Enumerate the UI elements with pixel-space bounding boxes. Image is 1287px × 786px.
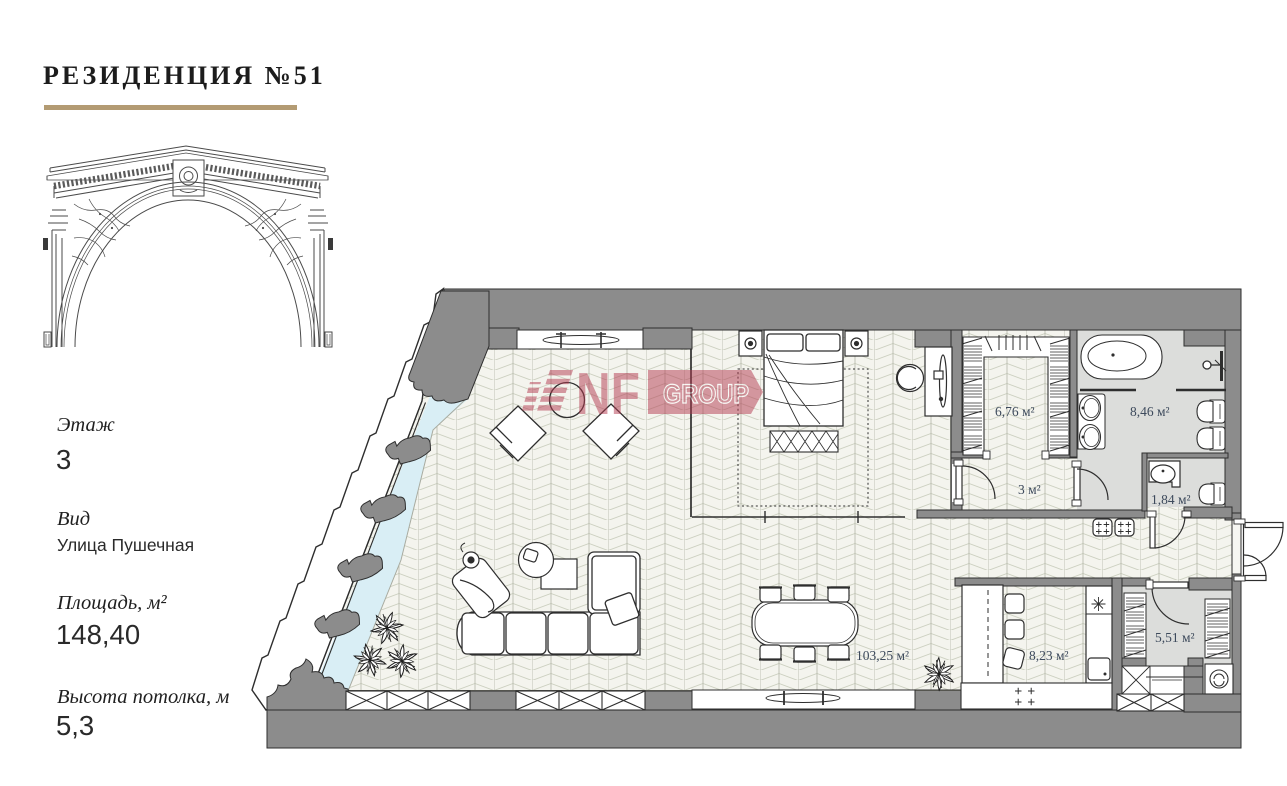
svg-text:8,46 м²: 8,46 м² bbox=[1130, 404, 1170, 419]
svg-text:NF: NF bbox=[576, 361, 640, 427]
svg-text:103,25 м²: 103,25 м² bbox=[856, 648, 909, 663]
svg-text:GROUP: GROUP bbox=[663, 379, 749, 409]
svg-text:5,51 м²: 5,51 м² bbox=[1155, 630, 1195, 645]
svg-text:3 м²: 3 м² bbox=[1018, 482, 1041, 497]
svg-text:8,23 м²: 8,23 м² bbox=[1029, 648, 1069, 663]
svg-text:1,84 м²: 1,84 м² bbox=[1151, 492, 1191, 507]
svg-text:6,76 м²: 6,76 м² bbox=[995, 404, 1035, 419]
